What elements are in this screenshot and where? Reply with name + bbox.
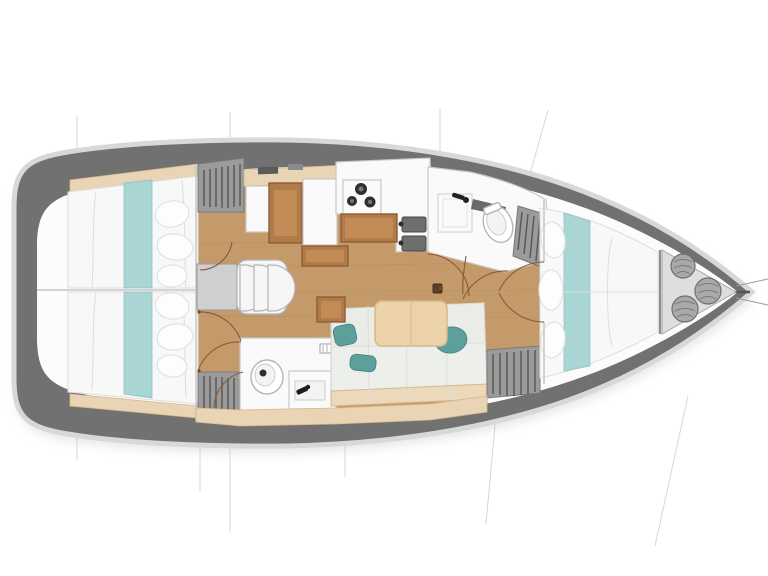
fender	[671, 254, 695, 278]
floor-plan-canvas	[0, 0, 768, 576]
teal-runner	[124, 292, 152, 398]
hanging-locker-forward-bottom	[487, 346, 540, 398]
aft-cabin-top	[68, 164, 198, 288]
pillows	[539, 221, 568, 360]
hanger-icons	[204, 376, 240, 413]
galley	[336, 158, 432, 252]
nav-seat	[246, 186, 270, 232]
hanging-locker-aft-top	[198, 158, 244, 212]
teal-runner	[124, 180, 152, 288]
toilet	[251, 360, 283, 394]
companionway-steps	[240, 265, 295, 311]
vanity-sink	[289, 371, 336, 409]
fender	[695, 278, 721, 304]
hanger-icons	[204, 164, 240, 208]
fender	[672, 296, 698, 322]
yacht-deck-plan	[0, 0, 768, 576]
companionway-landing	[197, 264, 237, 310]
nav-cabinet	[303, 179, 337, 245]
hanger-icons	[493, 350, 535, 396]
head-aft	[240, 338, 336, 413]
